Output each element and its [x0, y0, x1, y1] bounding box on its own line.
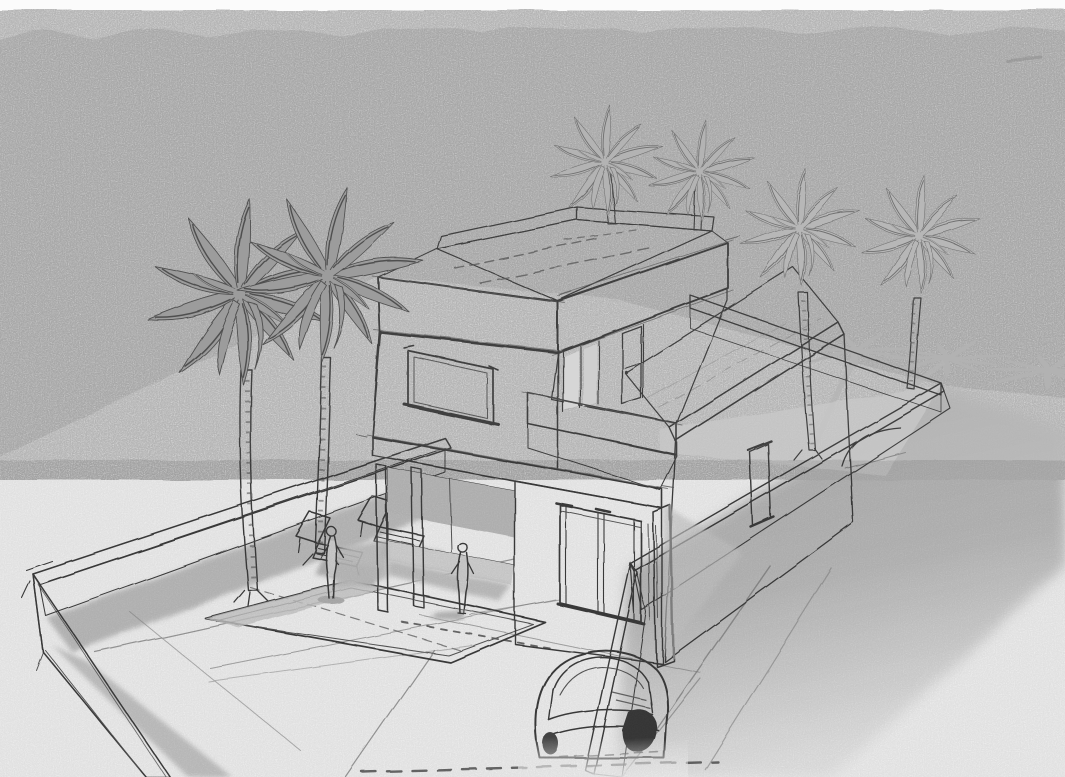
- sketch-canvas: Grayscale hand-drawn perspective sketch …: [0, 0, 1065, 777]
- paper-grain: [0, 460, 1065, 777]
- architectural-sketch: Grayscale hand-drawn perspective sketch …: [0, 0, 1065, 777]
